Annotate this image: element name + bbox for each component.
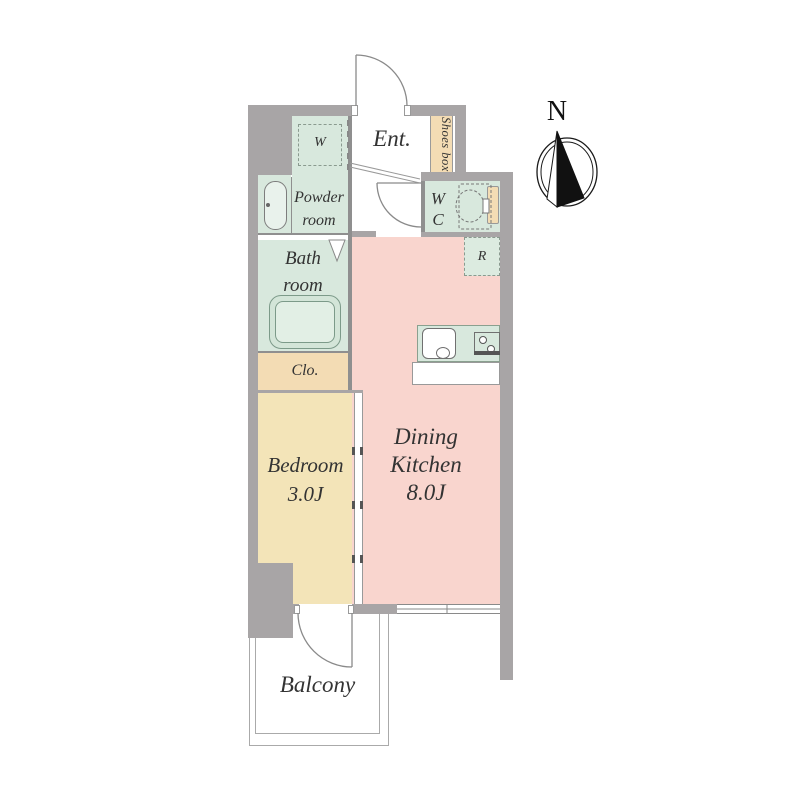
balcony-door-arc <box>298 613 352 667</box>
bath-room-label: Bath room <box>258 245 348 299</box>
washer-label: W <box>298 136 342 150</box>
hall-door-arc <box>377 183 421 227</box>
powder-room-label: Powder room <box>290 186 348 232</box>
balcony-label: Balcony <box>255 673 380 696</box>
compass <box>537 131 597 207</box>
entrance-label: Ent. <box>352 127 432 150</box>
toilet-bowl <box>456 190 484 222</box>
wc-label: W C <box>427 188 449 230</box>
dining-kitchen-label: Dining Kitchen 8.0J <box>352 423 500 507</box>
toilet <box>456 184 491 229</box>
floor-plan: Ent. Shoes box W Powder room W C R Bath … <box>0 0 800 800</box>
compass-north-label: N <box>543 98 571 126</box>
entrance-door-arc <box>356 55 407 106</box>
entrance-step-line-2 <box>350 167 420 183</box>
bedroom-label: Bedroom 3.0J <box>258 451 353 509</box>
closet-label: Clo. <box>258 363 352 379</box>
shoes-box-label: Shoes box <box>431 116 452 172</box>
toilet-hinge <box>483 199 489 213</box>
entrance-step-line-1 <box>350 163 420 179</box>
fridge-label: R <box>464 250 500 264</box>
plan-overlay <box>0 0 800 800</box>
